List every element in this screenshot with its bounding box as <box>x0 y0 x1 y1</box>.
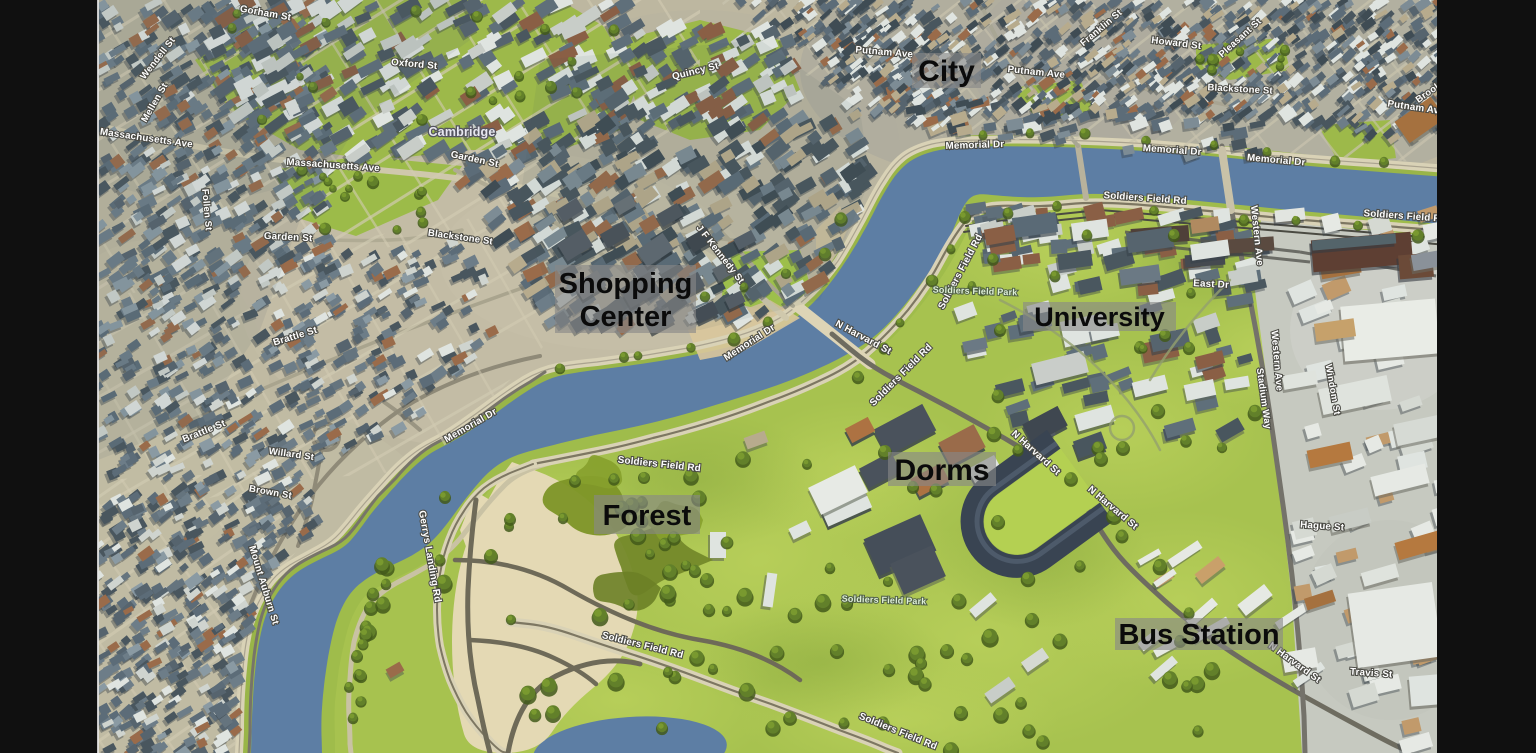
svg-text:Dorms: Dorms <box>894 454 989 487</box>
svg-text:Memorial Dr: Memorial Dr <box>945 139 1004 152</box>
svg-text:City: City <box>918 55 975 88</box>
svg-text:Center: Center <box>580 301 672 333</box>
svg-text:Forest: Forest <box>603 500 692 532</box>
svg-text:Shopping: Shopping <box>559 268 693 300</box>
svg-text:Cambridge: Cambridge <box>428 125 495 139</box>
svg-text:University: University <box>1034 302 1165 332</box>
svg-text:Bus Station: Bus Station <box>1118 619 1279 651</box>
svg-text:East Dr: East Dr <box>1193 278 1229 291</box>
